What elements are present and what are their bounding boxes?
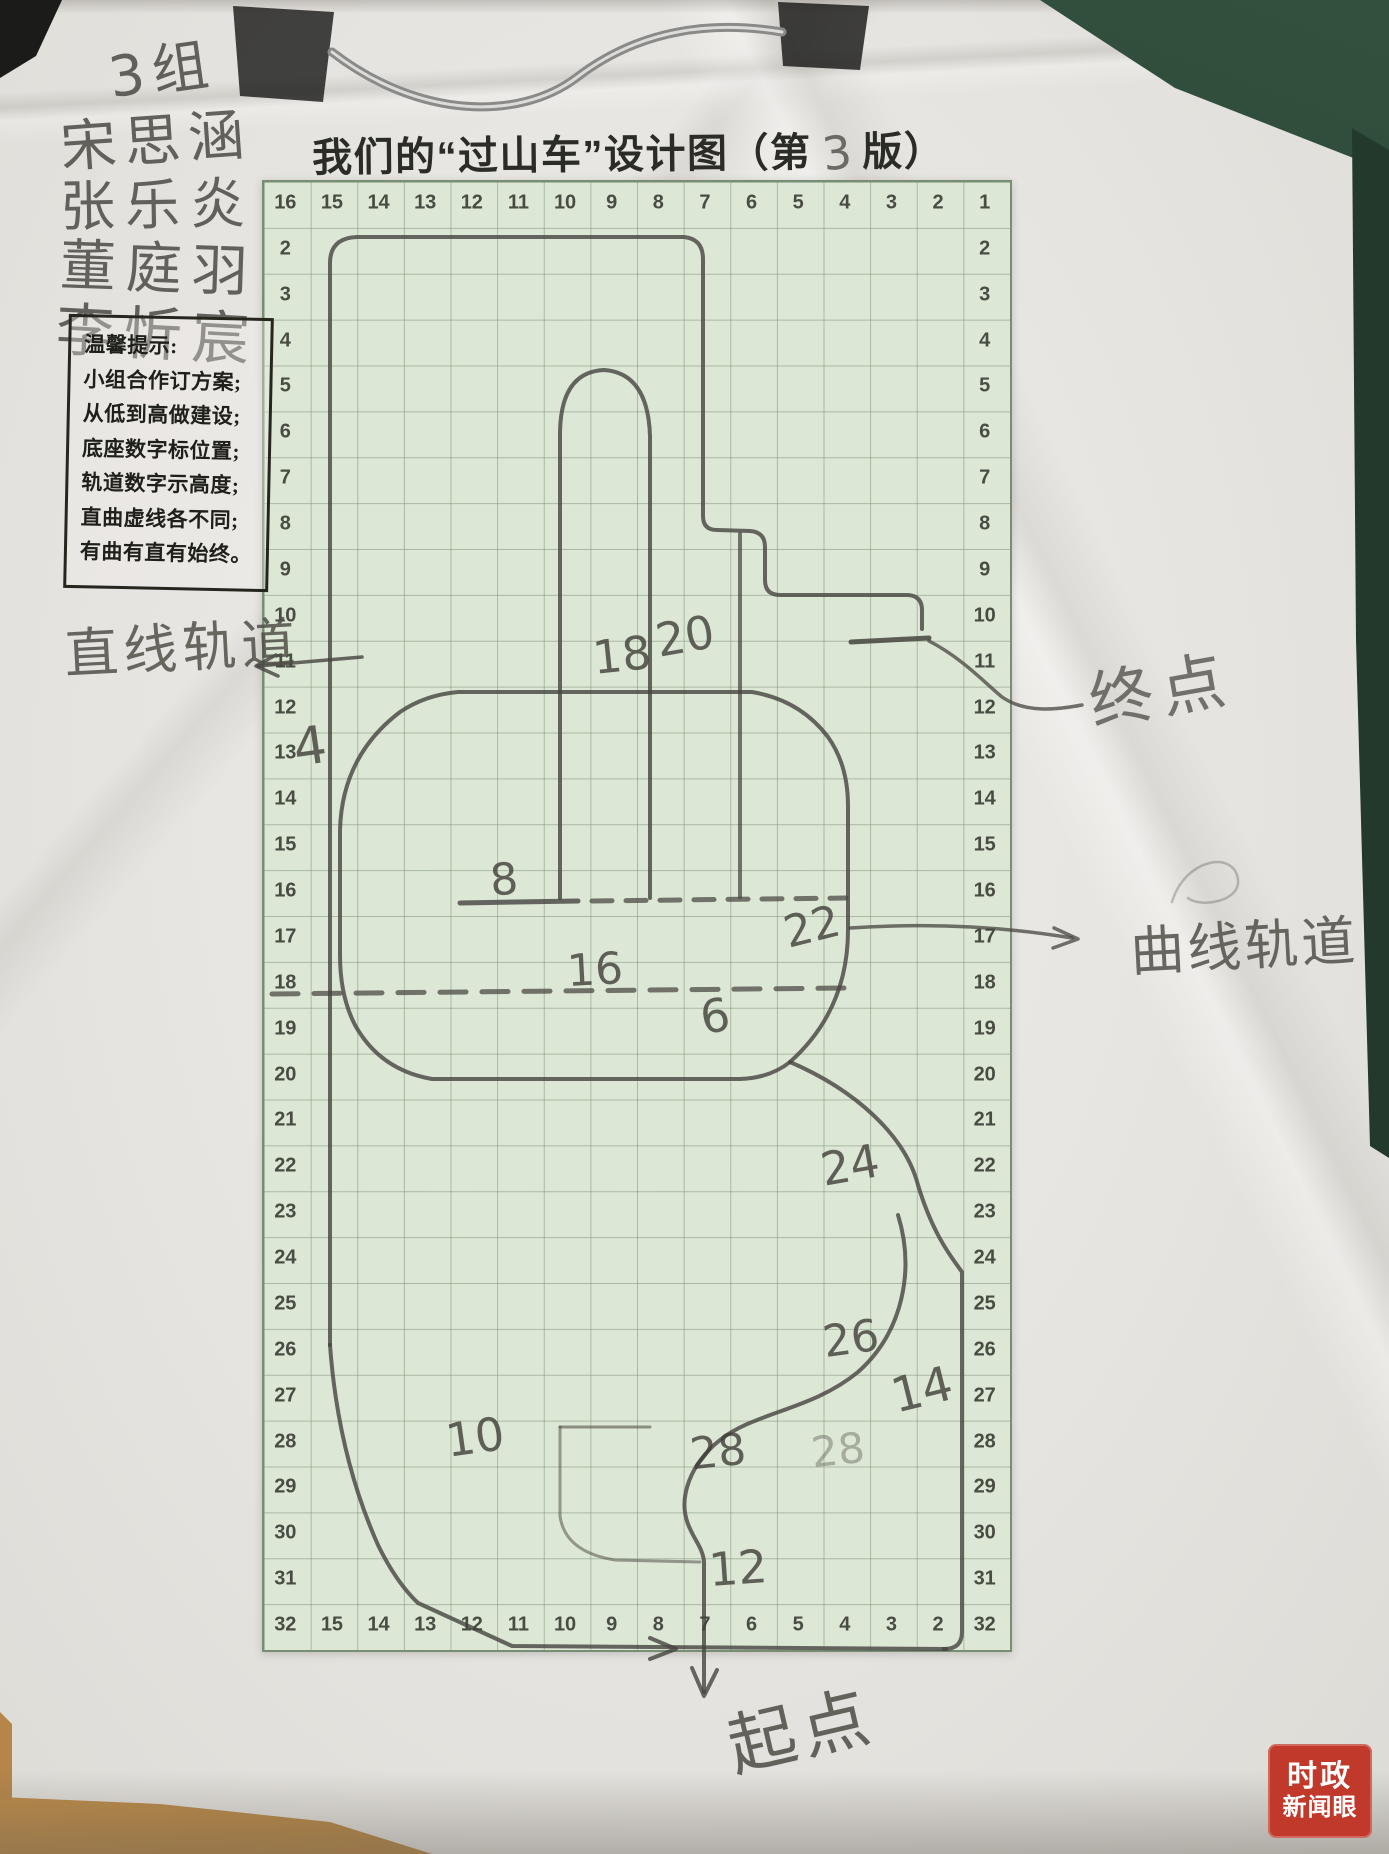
track-height-number: 16 [566, 943, 625, 997]
track-height-number: 22 [779, 895, 846, 958]
track-height-number: 28 [687, 1424, 748, 1481]
watermark-line2: 新闻眼 [1283, 1794, 1358, 1822]
photo-of-rollercoaster-design-sheet: 1615141312111098765432132151413121110987… [0, 0, 1389, 1854]
track-height-number: 24 [816, 1133, 883, 1196]
track-height-number: 18 [590, 625, 654, 685]
track-height-numbers: 1820842216624261428281012 [0, 0, 1389, 1854]
track-height-number: 6 [696, 987, 734, 1045]
track-height-number: 8 [488, 853, 520, 906]
track-height-number: 10 [442, 1406, 507, 1468]
track-height-number: 14 [886, 1355, 959, 1424]
watermark-line1: 时政 [1287, 1760, 1353, 1794]
track-height-number: 12 [707, 1539, 769, 1597]
watermark-badge: 时政 新闻眼 [1268, 1744, 1372, 1838]
track-height-number: 26 [820, 1310, 883, 1368]
track-height-number: 20 [651, 604, 718, 667]
track-height-number: 28 [809, 1423, 867, 1477]
track-height-number: 4 [289, 715, 330, 779]
